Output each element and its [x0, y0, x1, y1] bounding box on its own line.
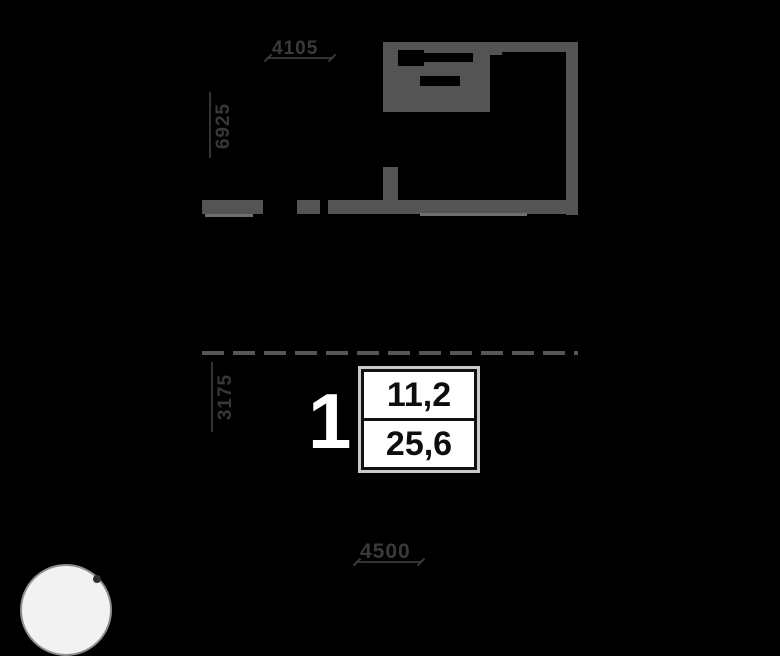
watermark-dot-icon: [93, 575, 101, 583]
floor-plan-canvas: { "canvas": { "width": 780, "height": 58…: [0, 0, 780, 580]
dimension-top-tick-right: [328, 54, 336, 62]
watermark-logo: [20, 564, 112, 656]
wall-right: [566, 42, 578, 215]
unit-area-table: 11,2 25,6: [361, 369, 477, 470]
fixture-cutout: [420, 76, 460, 86]
wall-bottom-mid: [297, 200, 320, 214]
unit-info-box[interactable]: 11,2 25,6: [358, 366, 480, 473]
window-sill-right: [420, 213, 527, 216]
dimension-left-lower-line: [211, 362, 213, 432]
dimension-bottom-line: [356, 561, 422, 563]
dashed-boundary-line: [202, 351, 578, 355]
total-area-value: 25,6: [364, 418, 474, 467]
unit-number: 1: [308, 382, 351, 460]
dimension-left-upper-value: 6925: [212, 92, 236, 160]
wall-left-lower: [383, 167, 398, 203]
dimension-top-value: 4105: [272, 39, 318, 58]
dimension-top-line: [267, 57, 333, 59]
wall-bottom-left: [202, 200, 263, 214]
door-opening-cutout: [424, 53, 473, 62]
wall-bottom-main: [328, 200, 578, 214]
dimension-left-lower-value: 3175: [214, 364, 238, 430]
window-line-top: [502, 52, 566, 55]
dimension-left-upper-line: [209, 92, 211, 158]
living-area-value: 11,2: [364, 372, 474, 418]
window-sill-left: [205, 214, 253, 217]
dimension-bottom-tick-right: [417, 558, 425, 566]
dimension-bottom-value: 4500: [360, 541, 411, 562]
door-leaf-cutout: [398, 50, 424, 66]
